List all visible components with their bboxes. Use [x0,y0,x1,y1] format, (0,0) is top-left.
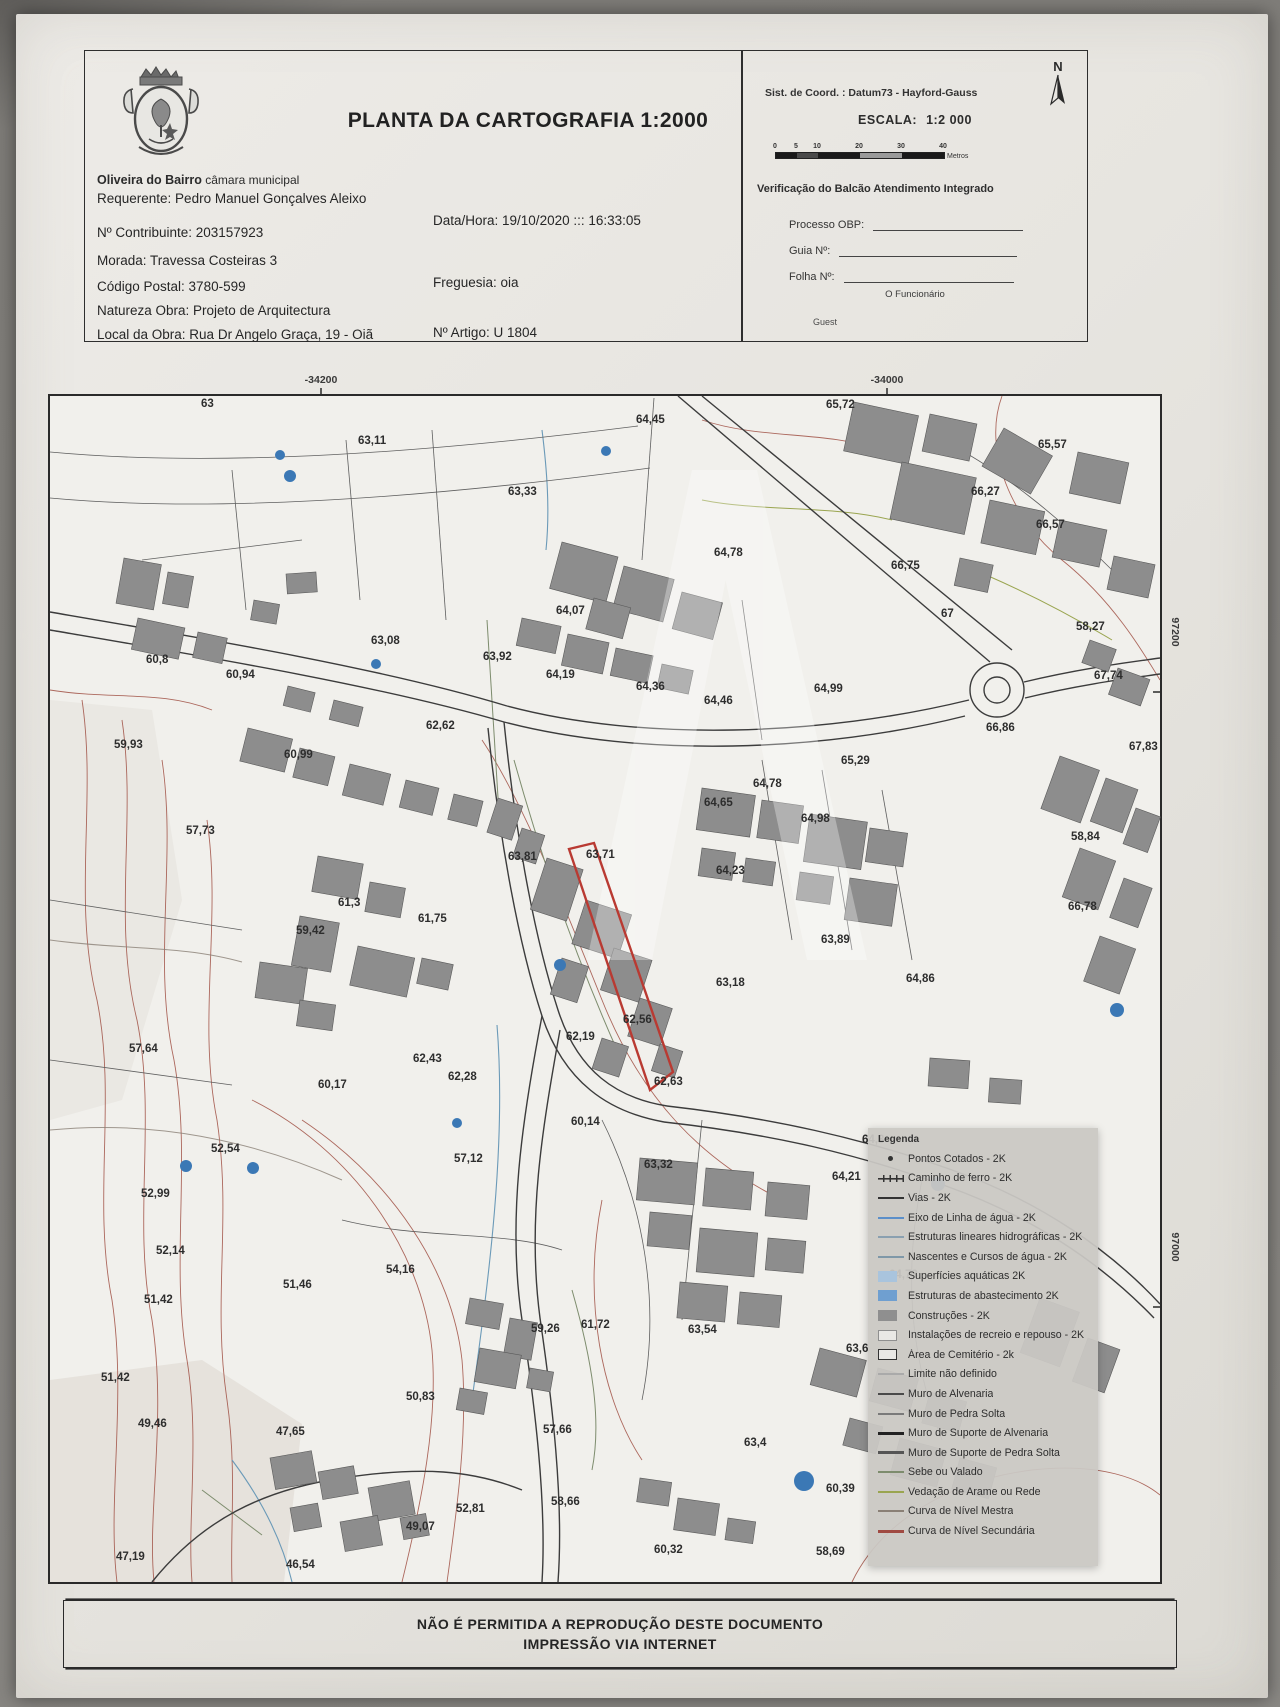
legend-symbol-line-icon [878,1373,908,1375]
verification-title: Verificação do Balcão Atendimento Integr… [757,183,1073,195]
legend-item: Muro de Suporte de Pedra Solta [878,1443,1090,1463]
legend-symbol-line-icon [878,1510,908,1512]
legend-symbol-box-icon [878,1290,908,1301]
spot-elevation-label: 63,4 [744,1437,767,1449]
spot-elevation-label: 64,86 [906,973,935,985]
legend-item: Caminho de ferro - 2K [878,1169,1090,1189]
scale-bar: 0510203040 Metros [775,143,975,169]
legend-item: Vias - 2K [878,1188,1090,1208]
spot-elevation-label: 66,27 [971,486,1000,498]
legend-symbol-line-icon [878,1413,908,1415]
scale-bar-segment [797,153,818,158]
municipality-name: Oliveira do Bairro câmara municipal [97,173,299,187]
spot-elevation-label: 63,89 [821,934,850,946]
municipal-coat-of-arms-logo [113,63,209,172]
scale-tick-label: 10 [813,143,821,150]
legend-item-label: Curva de Nível Mestra [908,1505,1013,1517]
scale-bar-segment [776,153,797,158]
spot-elevation-label: 52,14 [156,1245,185,1257]
legend-item-label: Curva de Nível Secundária [908,1525,1035,1537]
map-grid-coordinate: -34000 [871,374,904,386]
spot-elevation-label: 63 [201,398,214,410]
spot-elevation-label: 63,81 [508,851,537,863]
spot-elevation-label: 60,32 [654,1544,683,1556]
field-natureza-obra: Natureza Obra: Projeto de Arquitectura [97,303,330,318]
legend-symbol-thick-icon [878,1432,908,1435]
legend-item-label: Eixo de Linha de água - 2K [908,1212,1036,1224]
north-arrow: N [1045,59,1071,113]
legend-symbol-line-icon [878,1256,908,1258]
legend-item: Muro de Suporte de Alvenaria [878,1423,1090,1443]
spot-elevation-label: 57,66 [543,1424,572,1436]
footer-notice: NÃO É PERMITIDA A REPRODUÇÃO DESTE DOCUM… [63,1600,1177,1668]
spot-elevation-label: 63,11 [358,435,387,447]
spot-elevation-label: 63,6 [846,1343,868,1355]
spot-elevation-label: 49,46 [138,1418,167,1430]
spot-elevation-label: 47,65 [276,1426,305,1438]
field-codigo-postal: Código Postal: 3780-599 [97,279,246,294]
escala-value: 1:2 000 [926,113,972,127]
legend-item-label: Sebe ou Valado [908,1466,983,1478]
spot-elevation-label: 52,99 [141,1188,170,1200]
spot-elevation-label: 63,92 [483,651,512,663]
scale-tick-label: 0 [773,143,777,150]
north-arrow-icon [1049,74,1067,108]
spot-elevation-label: 64,99 [814,683,843,695]
scale-bar-segments [775,152,945,159]
spot-elevation-label: 66,86 [986,722,1015,734]
spot-elevation-label: 47,19 [116,1551,145,1563]
legend-item: Nascentes e Cursos de água - 2K [878,1247,1090,1267]
spot-elevation-label: 59,93 [114,739,143,751]
field-local-obra: Local da Obra: Rua Dr Angelo Graça, 19 -… [97,327,373,342]
spot-elevation-label: 66,75 [891,560,920,572]
legend-symbol-line-icon [878,1491,908,1493]
spot-elevation-label: 50,83 [406,1391,435,1403]
legend-item: Pontos Cotados - 2K [878,1149,1090,1169]
legend-item-label: Instalações de recreio e repouso - 2K [908,1329,1084,1341]
scale-tick-label: 30 [897,143,905,150]
spot-elevation-label: 62,19 [566,1031,595,1043]
legend-item-label: Estruturas de abastecimento 2K [908,1290,1059,1302]
spot-elevation-label: 54,16 [386,1264,415,1276]
spot-elevation-label: 64,07 [556,605,585,617]
spot-elevation-label: 57,64 [129,1043,158,1055]
legend-item-label: Muro de Alvenaria [908,1388,993,1400]
spot-elevation-label: 61,3 [338,897,360,909]
legend-item-label: Área de Cemitério - 2k [908,1349,1014,1361]
folha-label: Folha Nº: [789,271,835,283]
legend-item-label: Estruturas lineares hidrográficas - 2K [908,1231,1082,1243]
legend-item: Construções - 2K [878,1306,1090,1326]
legend-symbol-thick-icon [878,1451,908,1454]
spot-elevation-label: 49,07 [406,1521,435,1533]
spot-elevation-label: 62,62 [426,720,455,732]
signature-text: Guest [813,317,837,327]
spot-elevation-label: 60,17 [318,1079,347,1091]
legend-item: Vedação de Arame ou Rede [878,1482,1090,1502]
legend-item-label: Limite não definido [908,1368,997,1380]
legend-symbol-box-icon [878,1271,908,1282]
map-grid-coordinate: -34200 [305,374,338,386]
legend-item: Superfícies aquáticas 2K [878,1267,1090,1287]
footer-line-1: NÃO É PERMITIDA A REPRODUÇÃO DESTE DOCUM… [417,1614,823,1634]
legend-symbol-point-icon [878,1156,908,1161]
processo-row: Processo OBP: [789,219,1023,231]
municipality-name-bold: Oliveira do Bairro [97,173,202,187]
spot-elevation-label: 63,08 [371,635,400,647]
legend-symbol-rail-icon [878,1175,908,1182]
escala-caption: ESCALA: [858,113,917,127]
scale-tick-label: 5 [794,143,798,150]
spot-elevation-label: 52,81 [456,1503,485,1515]
spot-elevation-label: 62,43 [413,1053,442,1065]
spot-elevation-label: 60,94 [226,669,255,681]
legend-item: Área de Cemitério - 2k [878,1345,1090,1365]
spot-elevation-label: 63,32 [644,1159,673,1171]
municipality-name-rest: câmara municipal [202,173,299,187]
spot-elevation-label: 63,33 [508,486,537,498]
spot-elevation-label: 57,73 [186,825,215,837]
spot-elevation-label: 51,42 [144,1294,173,1306]
legend-item-label: Caminho de ferro - 2K [908,1172,1012,1184]
coord-system-label: Sist. de Coord. : Datum73 - Hayford-Gaus… [765,87,977,99]
spot-elevation-label: 64,78 [753,778,782,790]
legend-symbol-thick-icon [878,1530,908,1533]
folha-blank-line [844,272,1014,283]
spot-elevation-label: 64,98 [801,813,830,825]
spot-elevation-label: 60,99 [284,749,313,761]
page-title: PLANTA DA CARTOGRAFIA 1:2000 [323,109,733,133]
spot-elevation-label: 65,57 [1038,439,1067,451]
legend-symbol-box-icon [878,1310,908,1321]
legend-item-label: Vedação de Arame ou Rede [908,1486,1041,1498]
map-grid-coordinate: 97000 [1169,1232,1181,1261]
legend-symbol-line-icon [878,1471,908,1473]
spot-elevation-label: 64,65 [704,797,733,809]
legend-items: Pontos Cotados - 2KCaminho de ferro - 2K… [878,1149,1090,1541]
spot-elevation-label: 66,57 [1036,519,1065,531]
legend-item: Curva de Nível Mestra [878,1502,1090,1522]
scale-bar-segment [818,153,860,158]
spot-elevation-label: 64,36 [636,681,665,693]
spot-elevation-label: 51,46 [283,1279,312,1291]
spot-elevation-label: 52,54 [211,1143,240,1155]
header-left-panel: Oliveira do Bairro câmara municipal PLAN… [84,50,742,342]
legend-symbol-line-icon [878,1217,908,1219]
legend-item: Curva de Nível Secundária [878,1521,1090,1541]
scale-bar-segment [860,153,902,158]
document-page: Oliveira do Bairro câmara municipal PLAN… [16,14,1268,1698]
spot-elevation-label: 64,78 [714,547,743,559]
footer-line-2: IMPRESSÃO VIA INTERNET [523,1634,716,1654]
spot-elevation-label: 67,74 [1094,670,1123,682]
processo-blank-line [873,220,1023,231]
spot-elevation-label: 60,14 [571,1116,600,1128]
spot-elevation-label: 67,83 [1129,741,1158,753]
field-contribuinte: Nº Contribuinte: 203157923 [97,225,263,240]
legend-symbol-outline-icon [878,1330,908,1341]
legend-item-label: Muro de Pedra Solta [908,1408,1005,1420]
scale-label: ESCALA: 1:2 000 [743,113,1087,127]
spot-elevation-label: 58,66 [551,1496,580,1508]
spot-elevation-label: 64,23 [716,865,745,877]
spot-elevation-label: 60,8 [146,654,169,666]
legend-item: Estruturas lineares hidrográficas - 2K [878,1227,1090,1247]
field-requerente: Requerente: Pedro Manuel Gonçalves Aleix… [97,191,366,206]
spot-elevation-label: 60,39 [826,1483,855,1495]
spot-elevation-label: 64,21 [832,1171,861,1183]
legend-item-label: Muro de Suporte de Alvenaria [908,1427,1048,1439]
spot-elevation-label: 46,54 [286,1559,315,1571]
spot-elevation-label: 59,42 [296,925,325,937]
legend-symbol-line-icon [878,1393,908,1395]
map-legend: Legenda Pontos Cotados - 2KCaminho de fe… [868,1128,1098,1566]
spot-elevation-label: 66,78 [1068,901,1097,913]
spot-elevation-label: 58,27 [1076,621,1105,633]
spot-elevation-label: 58,84 [1071,831,1100,843]
spot-elevation-label: 62,28 [448,1071,477,1083]
legend-item: Limite não definido [878,1365,1090,1385]
legend-item-label: Vias - 2K [908,1192,951,1204]
guia-row: Guia Nº: [789,245,1017,257]
spot-elevation-label: 58,69 [816,1546,845,1558]
legend-symbol-outline-icon [878,1349,908,1360]
spot-elevation-label: 65,72 [826,399,855,411]
legend-item: Instalações de recreio e repouso - 2K [878,1325,1090,1345]
field-morada: Morada: Travessa Costeiras 3 [97,253,277,268]
spot-elevation-label: 51,42 [101,1372,130,1384]
header-info-panel: N Sist. de Coord. : Datum73 - Hayford-Ga… [742,50,1088,342]
north-label: N [1045,59,1071,74]
legend-symbol-line-icon [878,1197,908,1199]
funcionario-label: O Funcionário [743,289,1087,300]
spot-elevation-label: 62,63 [654,1076,683,1088]
scale-bar-unit: Metros [947,153,968,160]
legend-item: Muro de Alvenaria [878,1384,1090,1404]
scale-tick-label: 40 [939,143,947,150]
legend-item-label: Nascentes e Cursos de água - 2K [908,1251,1067,1263]
legend-symbol-line-icon [878,1236,908,1238]
legend-item-label: Superfícies aquáticas 2K [908,1270,1025,1282]
spot-elevation-label: 63,54 [688,1324,717,1336]
spot-elevation-label: 63,71 [586,849,615,861]
spot-elevation-label: 64,19 [546,669,575,681]
scale-bar-ticks: 0510203040 [775,143,943,152]
field-artigo: Nº Artigo: U 1804 [433,325,537,340]
spot-elevation-label: 59,26 [531,1323,560,1335]
guia-blank-line [839,246,1017,257]
scale-tick-label: 20 [855,143,863,150]
folha-row: Folha Nº: [789,271,1014,283]
legend-item-label: Pontos Cotados - 2K [908,1153,1006,1165]
map-grid-coordinate: 97200 [1169,617,1181,646]
spot-elevation-label: 65,29 [841,755,870,767]
legend-title: Legenda [878,1134,1090,1145]
spot-elevation-label: 61,75 [418,913,447,925]
guia-label: Guia Nº: [789,245,830,257]
processo-label: Processo OBP: [789,219,864,231]
legend-item: Estruturas de abastecimento 2K [878,1286,1090,1306]
legend-item: Eixo de Linha de água - 2K [878,1208,1090,1228]
legend-item-label: Muro de Suporte de Pedra Solta [908,1447,1060,1459]
legend-item-label: Construções - 2K [908,1310,990,1322]
spot-elevation-label: 67 [941,608,954,620]
legend-item: Sebe ou Valado [878,1463,1090,1483]
field-data-hora: Data/Hora: 19/10/2020 ::: 16:33:05 [433,213,641,228]
legend-item: Muro de Pedra Solta [878,1404,1090,1424]
field-freguesia: Freguesia: oia [433,275,519,290]
spot-elevation-label: 62,56 [623,1014,652,1026]
spot-elevation-label: 61,72 [581,1319,610,1331]
spot-elevation-label: 64,45 [636,414,665,426]
scale-bar-segment [902,153,944,158]
spot-elevation-label: 63,18 [716,977,745,989]
spot-elevation-label: 64,46 [704,695,733,707]
spot-elevation-label: 57,12 [454,1153,483,1165]
